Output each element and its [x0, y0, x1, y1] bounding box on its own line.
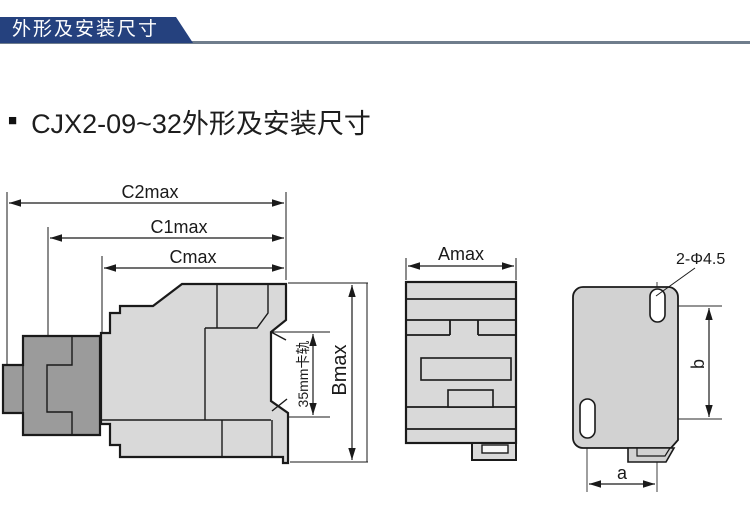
- mounting-hole-top: [650, 289, 665, 322]
- contactor-side-body: [101, 284, 288, 463]
- dim-label-a: a: [617, 463, 628, 483]
- front-small-panel: [448, 390, 493, 407]
- page-section-banner: 外形及安装尺寸: [0, 17, 195, 43]
- dim-label-b: b: [688, 359, 708, 369]
- dim-label-bmax: Bmax: [329, 344, 351, 395]
- din-rail-label: 35mm卡轨: [295, 341, 311, 408]
- mounting-view-diagram: 2-Φ4.5 b a: [573, 251, 725, 492]
- side-view-diagram: C2max C1max Cmax Bmax 35mm卡轨: [3, 182, 368, 463]
- front-view-diagram: Amax: [406, 244, 516, 460]
- side-view-mount-block: [3, 336, 100, 435]
- plate-bottom-tab: [628, 448, 674, 462]
- dimension-drawings: C2max C1max Cmax Bmax 35mm卡轨 Amax: [0, 0, 750, 509]
- dim-label-c1max: C1max: [150, 217, 207, 237]
- dim-label-cmax: Cmax: [169, 247, 216, 267]
- page: { "header": { "title": "外形及安装尺寸" }, "sec…: [0, 0, 750, 509]
- holes-spec-label: 2-Φ4.5: [676, 251, 725, 268]
- dim-label-amax: Amax: [438, 244, 484, 264]
- front-bottom-tab-slot: [482, 445, 508, 453]
- dim-label-c2max: C2max: [121, 182, 178, 202]
- banner-title: 外形及安装尺寸: [12, 19, 159, 40]
- mounting-hole-bottom: [580, 399, 595, 438]
- front-nameplate: [421, 358, 511, 380]
